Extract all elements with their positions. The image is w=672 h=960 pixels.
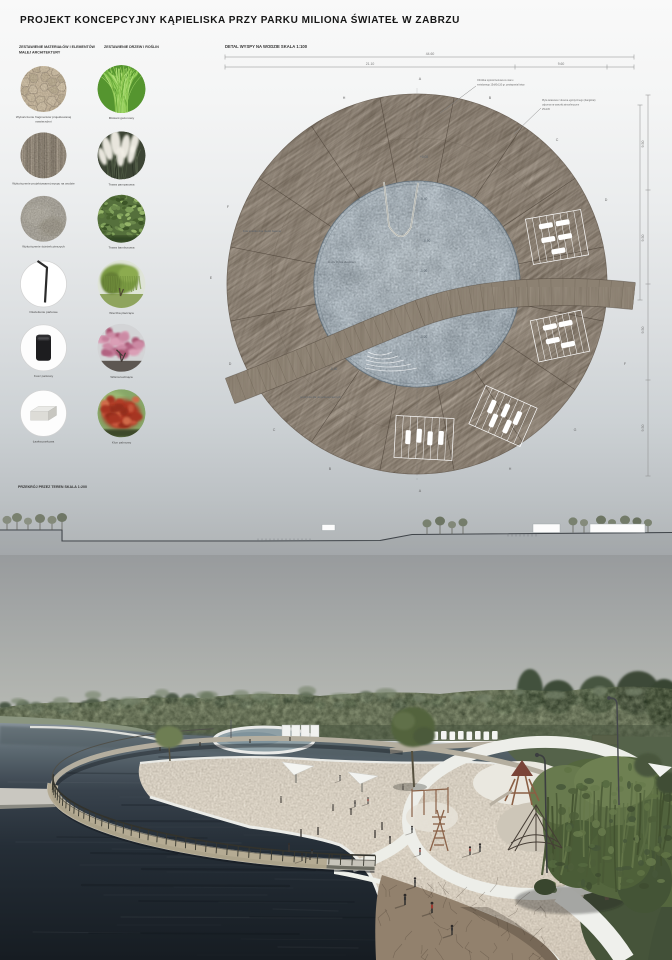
svg-text:Obróbka wykończeniowa ze stanu: Obróbka wykończeniowa ze stanu	[477, 79, 514, 82]
svg-text:E: E	[210, 276, 213, 280]
svg-text:-0,40: -0,40	[420, 197, 427, 201]
svg-text:F: F	[624, 362, 627, 366]
svg-text:F: F	[227, 205, 230, 209]
svg-text:9.50: 9.50	[641, 235, 645, 242]
svg-text:DETAL WYSPY NA WODZIE SKALA 1:: DETAL WYSPY NA WODZIE SKALA 1:100	[225, 44, 308, 49]
svg-text:9.50: 9.50	[641, 327, 645, 334]
svg-text:strefa płytka dla dzieci: strefa płytka dla dzieci	[328, 260, 356, 264]
svg-text:21.10: 21.10	[366, 62, 375, 66]
svg-text:pochylnia dla niepełnosprawnyc: pochylnia dla niepełnosprawnych	[300, 395, 341, 399]
svg-text:-0,90: -0,90	[423, 239, 430, 243]
svg-text:-1,20: -1,20	[420, 269, 427, 273]
svg-text:odporna na warunki atmosferycz: odporna na warunki atmosferyczne	[542, 104, 580, 107]
svg-text:D: D	[229, 362, 232, 366]
svg-text:+0,00: +0,00	[420, 155, 428, 159]
svg-text:25x145: 25x145	[542, 108, 551, 111]
svg-text:linia spadku dna niecki basenu: linia spadku dna niecki basenu	[243, 229, 282, 233]
svg-text:9.50: 9.50	[641, 141, 645, 148]
svg-text:H: H	[343, 96, 346, 100]
svg-text:-1,20: -1,20	[420, 335, 427, 339]
svg-text:metalowego 15x80x110 gr. powią: metalowego 15x80x110 gr. powiązania list…	[477, 84, 525, 87]
svg-text:C: C	[273, 428, 276, 432]
svg-text:9.50: 9.50	[641, 425, 645, 432]
svg-text:H: H	[509, 467, 512, 471]
svg-text:44.60: 44.60	[426, 52, 435, 56]
svg-text:9.60: 9.60	[558, 62, 565, 66]
svg-text:C: C	[556, 138, 559, 142]
svg-text:D: D	[605, 198, 608, 202]
svg-text:Płyta tarasowa z drewna egzoty: Płyta tarasowa z drewna egzotycznego (ba…	[542, 99, 596, 102]
svg-text:B: B	[329, 467, 332, 471]
svg-text:PRZEKRÓJ PRZEZ TEREN SKALA 1:2: PRZEKRÓJ PRZEZ TEREN SKALA 1:200	[18, 484, 87, 489]
svg-text:B: B	[489, 96, 492, 100]
svg-text:-0,40: -0,40	[330, 367, 337, 371]
svg-text:G: G	[574, 428, 577, 432]
svg-text:A: A	[419, 77, 422, 81]
